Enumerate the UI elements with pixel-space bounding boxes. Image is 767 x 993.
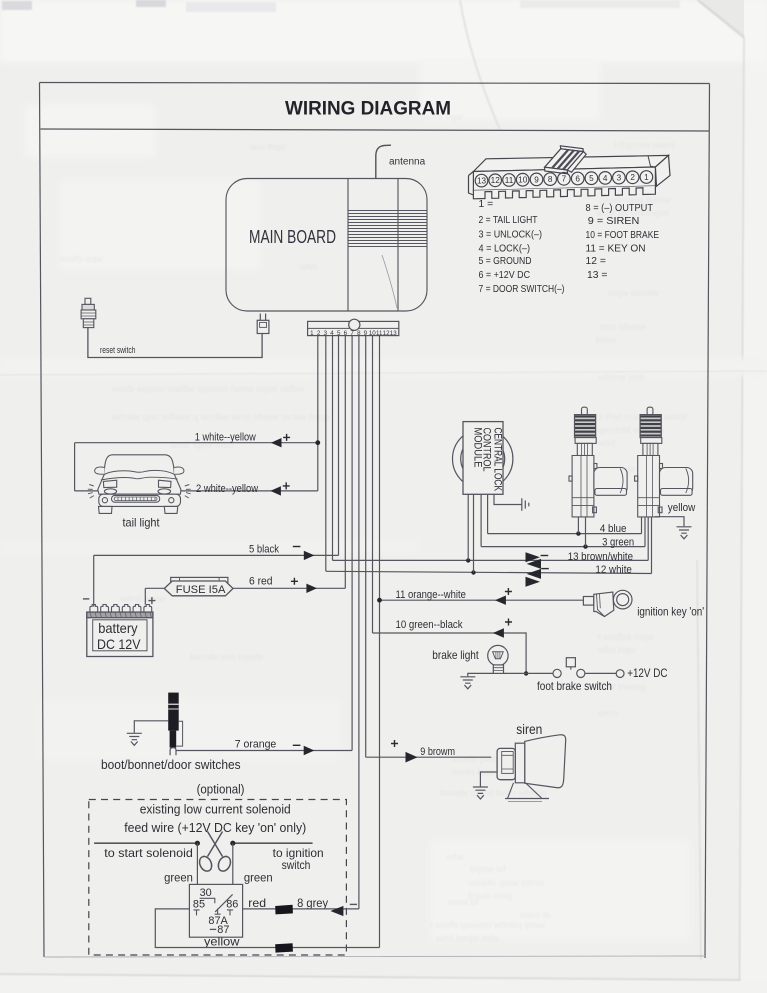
svg-text:bwmfe wm bqwfe: bwmfe wm bqwfe <box>190 652 263 663</box>
svg-text:bmwfe qwmf bwm wfmbq: bmwfe qwmf bwm wfmbq <box>440 788 547 799</box>
svg-text:6: 6 <box>575 174 580 183</box>
svg-text:6 red: 6 red <box>249 576 273 588</box>
svg-text:5 black: 5 black <box>249 544 279 556</box>
svg-text:foot brake switch: foot brake switch <box>537 679 612 693</box>
svg-text:1 white--yellow: 1 white--yellow <box>195 431 257 443</box>
svg-text:11: 11 <box>505 176 514 185</box>
svg-text:1: 1 <box>310 330 314 337</box>
svg-text:existing low current solenoid: existing low current solenoid <box>140 803 291 817</box>
svg-text:mwfb eqw: mwfb eqw <box>60 254 103 265</box>
svg-text:switch: switch <box>282 858 311 872</box>
svg-text:wfm: wfm <box>299 262 318 273</box>
svg-text:bmw: bmw <box>596 335 616 346</box>
svg-text:4: 4 <box>603 174 608 183</box>
svg-text:mqw ebmfw: mqw ebmfw <box>608 288 659 299</box>
svg-text:13: 13 <box>477 177 487 186</box>
svg-text:wm fbqe: wm fbqe <box>249 142 286 153</box>
svg-text:wfmb emw: wfmb emw <box>119 594 166 605</box>
svg-text:antenna: antenna <box>389 157 426 168</box>
svg-text:2 = TAIL LIGHT: 2 = TAIL LIGHT <box>479 215 539 226</box>
svg-text:10 green--black: 10 green--black <box>396 619 463 631</box>
svg-text:battery: battery <box>98 621 137 636</box>
svg-text:87: 87 <box>217 924 229 936</box>
svg-text:7 = DOOR SWITCH(–): 7 = DOOR SWITCH(–) <box>479 284 565 295</box>
svg-text:wmfb eqwnc mwfbe qwmcb fwme bq: wmfb eqwnc mwfbe qwmcb fwme bqwc mfbw <box>111 384 304 395</box>
svg-text:11 orange--white: 11 orange--white <box>396 589 466 601</box>
svg-text:FUSE I5A: FUSE I5A <box>176 584 226 596</box>
svg-text:7 orange: 7 orange <box>235 739 277 751</box>
svg-text:bqme wf: bqme wf <box>470 864 506 875</box>
svg-text:5: 5 <box>589 174 594 183</box>
svg-text:13 =: 13 = <box>587 270 607 281</box>
svg-text:t wmfb qenwm wfmbq emw: t wmfb qenwm wfmbq emw <box>430 920 545 931</box>
svg-text:MAIN BOARD: MAIN BOARD <box>249 226 336 247</box>
svg-text:3: 3 <box>617 174 622 183</box>
svg-text:8 = (–) OUTPUT: 8 = (–) OUTPUT <box>586 203 654 214</box>
svg-text:11 = KEY ON: 11 = KEY ON <box>586 244 646 255</box>
svg-text:10: 10 <box>518 176 528 185</box>
svg-text:1: 1 <box>644 173 649 182</box>
svg-text:qwm: qwm <box>598 708 618 719</box>
svg-text:WIRING DIAGRAM: WIRING DIAGRAM <box>285 98 451 120</box>
svg-text:tail light: tail light <box>123 516 161 530</box>
svg-text:85: 85 <box>193 898 205 910</box>
svg-text:9 browm: 9 browm <box>420 746 455 758</box>
svg-text:yellow: yellow <box>668 502 696 514</box>
svg-text:wfm bqw: wfm bqw <box>597 645 636 656</box>
svg-text:13: 13 <box>390 330 397 337</box>
svg-text:wfmbe qwc mfbwe q wmfbe wmc bf: wfmbe qwc mfbwe q wmfbe wmc bfqwe mcbw f… <box>111 412 330 423</box>
svg-text:3 = UNLOCK(–): 3 = UNLOCK(–) <box>479 230 543 241</box>
svg-text:+12V DC: +12V DC <box>627 666 667 680</box>
svg-text:boot/bonnet/door switches: boot/bonnet/door switches <box>101 758 241 772</box>
svg-text:wmbfe qmw bfmw: wmbfe qmw bfmw <box>467 878 544 889</box>
svg-text:red: red <box>248 896 266 910</box>
svg-text:green: green <box>244 871 273 885</box>
svg-text:12: 12 <box>491 176 501 185</box>
svg-text:7: 7 <box>562 175 567 184</box>
svg-text:6 = +12V DC: 6 = +12V DC <box>479 270 531 281</box>
svg-text:8: 8 <box>548 175 553 184</box>
svg-text:feed wire (+12V DC key 'on' on: feed wire (+12V DC key 'on' only) <box>124 821 306 835</box>
svg-text:2 white--yellow: 2 white--yellow <box>196 483 259 495</box>
svg-text:86: 86 <box>226 898 238 910</box>
svg-text:emw bf: emw bf <box>448 897 479 908</box>
svg-text:green: green <box>164 871 193 885</box>
svg-text:Hfqpmm mwnl: Hfqpmm mwnl <box>614 140 675 151</box>
svg-text:wbm fe: wbm fe <box>519 910 551 921</box>
svg-text:siren: siren <box>516 722 542 737</box>
svg-text:4 = LOCK(–): 4 = LOCK(–) <box>479 244 531 255</box>
svg-text:reset switch: reset switch <box>100 345 136 355</box>
svg-text:10 = FOOT BRAKE: 10 = FOOT BRAKE <box>586 230 660 241</box>
svg-text:8 grey: 8 grey <box>297 896 328 910</box>
svg-text:12 =: 12 = <box>586 256 606 267</box>
svg-text:ignition key 'on': ignition key 'on' <box>637 605 704 618</box>
svg-text:MODULE: MODULE <box>471 428 483 468</box>
svg-text:30: 30 <box>200 887 212 899</box>
svg-text:brake light: brake light <box>432 648 479 662</box>
svg-text:13 brown/white: 13 brown/white <box>568 551 633 563</box>
svg-text:3 green: 3 green <box>602 536 634 548</box>
svg-text:1 =: 1 = <box>479 199 494 210</box>
svg-text:12 white: 12 white <box>595 564 632 576</box>
svg-text:wmf beqw mfw: wmf beqw mfw <box>435 933 499 944</box>
svg-text:9: 9 <box>534 175 539 184</box>
svg-text:(optional): (optional) <box>197 783 245 797</box>
svg-text:9 = SIREN: 9 = SIREN <box>588 216 640 227</box>
svg-text:mfw: mfw <box>446 852 464 863</box>
svg-text:t wmfba mqw: t wmfba mqw <box>598 632 654 643</box>
svg-text:DC 12V: DC 12V <box>97 637 141 652</box>
svg-text:to start solenoid: to start solenoid <box>104 846 193 860</box>
svg-text:4 blue: 4 blue <box>600 523 627 535</box>
svg-text:yellow: yellow <box>204 934 240 948</box>
svg-text:wfmne tmb: wfmne tmb <box>597 372 644 383</box>
svg-text:2: 2 <box>630 173 635 182</box>
svg-text:5 = GROUND: 5 = GROUND <box>479 256 532 267</box>
svg-text:tbm nfwme: tbm nfwme <box>600 322 646 333</box>
svg-text:wmf: wmf <box>597 438 616 449</box>
